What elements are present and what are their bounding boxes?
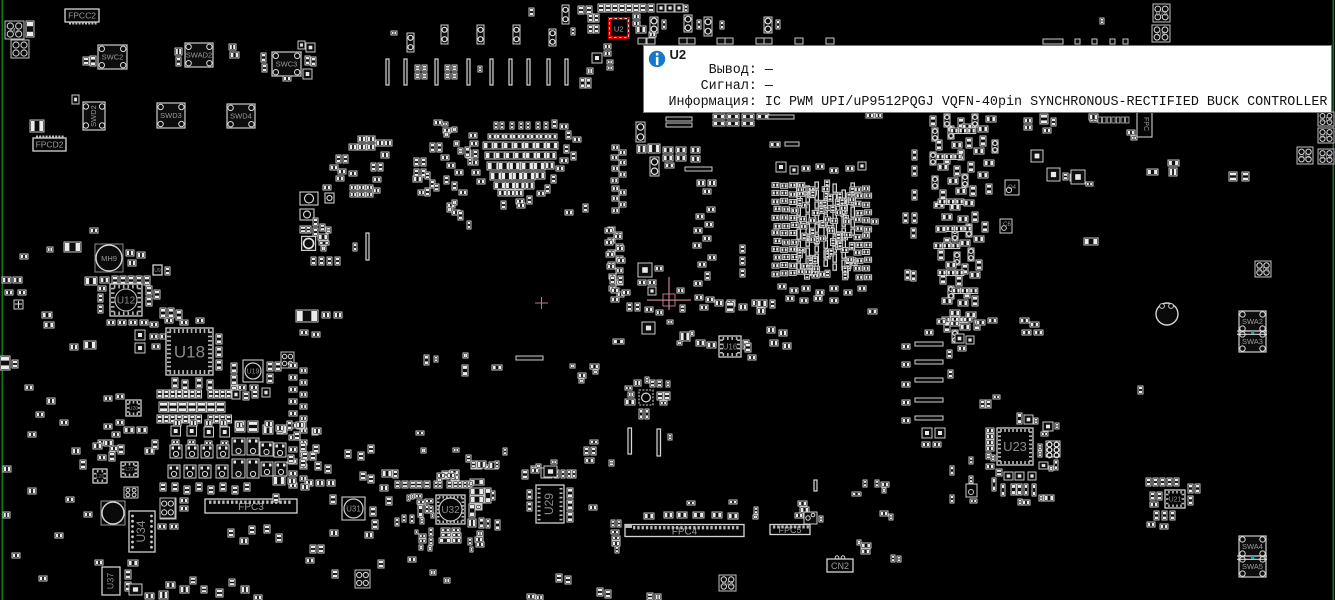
svg-text:L27: L27 xyxy=(125,467,134,473)
svg-text:SWA3: SWA3 xyxy=(1242,337,1263,346)
svg-text:U34: U34 xyxy=(134,520,148,542)
svg-text:U20: U20 xyxy=(129,406,138,412)
svg-text:SWAD2: SWAD2 xyxy=(186,51,212,60)
svg-text:SWC3: SWC3 xyxy=(276,60,298,69)
svg-text:U2: U2 xyxy=(614,25,624,34)
svg-text:SWA5: SWA5 xyxy=(1242,562,1263,571)
svg-text:U29: U29 xyxy=(542,493,556,515)
svg-text:U15: U15 xyxy=(1320,154,1332,161)
svg-text:M3: M3 xyxy=(10,28,19,35)
svg-text:SWC2: SWC2 xyxy=(102,53,124,62)
svg-text:U16: U16 xyxy=(723,342,738,351)
svg-text:U23: U23 xyxy=(1003,439,1027,454)
svg-text:SWD2: SWD2 xyxy=(89,105,98,127)
svg-text:U25: U25 xyxy=(1156,11,1168,18)
svg-text:U12: U12 xyxy=(117,296,136,307)
svg-text:U14: U14 xyxy=(1320,133,1332,140)
svg-text:SWD4: SWD4 xyxy=(230,112,252,121)
svg-text:MH9: MH9 xyxy=(101,254,117,263)
svg-text:U5: U5 xyxy=(1157,31,1166,38)
svg-text:U11: U11 xyxy=(1299,153,1311,160)
svg-text:FPCD2: FPCD2 xyxy=(36,140,64,150)
svg-text:U31: U31 xyxy=(346,504,361,513)
svg-text:U19: U19 xyxy=(247,368,260,375)
svg-text:U37: U37 xyxy=(105,573,115,590)
svg-text:L26: L26 xyxy=(96,474,105,480)
svg-text:FPCC2: FPCC2 xyxy=(68,11,96,21)
svg-text:U32: U32 xyxy=(441,505,460,516)
svg-text:SWA4: SWA4 xyxy=(1242,542,1263,551)
svg-text:C6: C6 xyxy=(1003,222,1011,228)
svg-text:U18: U18 xyxy=(174,342,205,361)
svg-text:O4: O4 xyxy=(1008,185,1017,191)
svg-text:FPC: FPC xyxy=(1142,117,1149,131)
svg-text:CN2: CN2 xyxy=(831,561,849,571)
svg-text:SWD3: SWD3 xyxy=(160,111,182,120)
svg-text:U13: U13 xyxy=(1320,117,1332,124)
svg-text:U21: U21 xyxy=(1169,496,1182,503)
svg-text:U9: U9 xyxy=(154,268,161,274)
svg-text:SWA2: SWA2 xyxy=(1242,317,1263,326)
svg-text:U42: U42 xyxy=(722,581,734,588)
svg-text:U10: U10 xyxy=(1257,267,1269,274)
